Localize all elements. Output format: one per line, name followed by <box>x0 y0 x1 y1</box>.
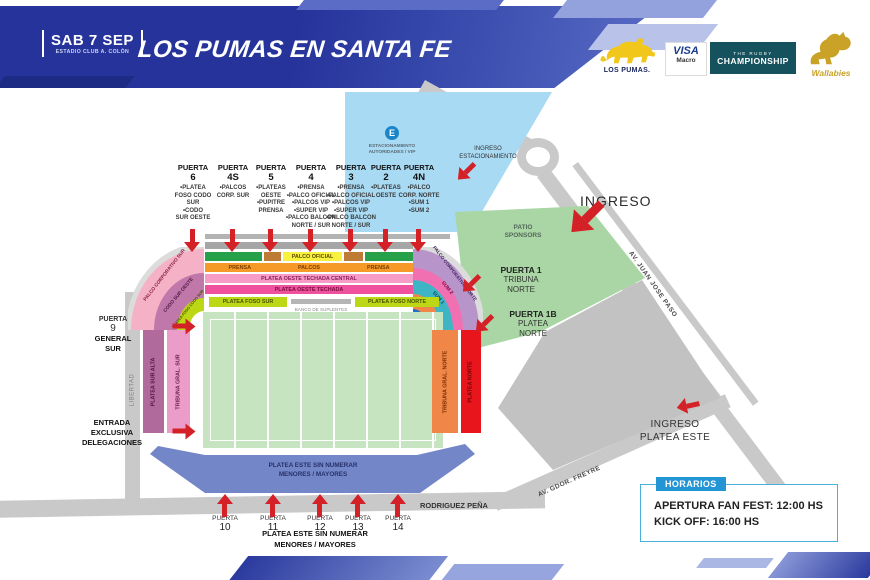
gate-9-number: 9 <box>85 323 141 334</box>
label-palcos: PALCOS <box>298 265 320 271</box>
arrow-gate-2 <box>377 229 393 252</box>
gate-1-subtitle: TRIBUNA NORTE <box>490 275 552 295</box>
section-platea-este: PLATEA ESTE SIN NUMERAR MENORES / MAYORE… <box>148 440 478 495</box>
label-platea-este: PLATEA ESTE SIN NUMERAR MENORES / MAYORE… <box>233 462 393 479</box>
label-prensa-right: PRENSA <box>367 265 389 271</box>
section-platea-oeste-techada-central: PLATEA OESTE TECHADA CENTRAL <box>205 274 413 283</box>
banco-suplentes-bar <box>291 299 351 304</box>
event-date-box: SAB 7 SEP ESTADIO CLUB A. COLÓN <box>42 30 143 57</box>
stadium-access-map: SAB 7 SEP ESTADIO CLUB A. COLÓN LOS PUMA… <box>0 0 870 580</box>
label-platea-sur-alta: PLATEA SUR ALTA <box>151 357 157 406</box>
arrow-gate-14 <box>390 494 406 517</box>
parking-badge: E <box>385 126 399 140</box>
label-platea-norte: PLATEA NORTE <box>468 361 474 402</box>
horarios-box <box>640 484 838 542</box>
gate-title: PUERTA <box>394 163 444 172</box>
section-tribuna-gral-norte: TRIBUNA GRAL. NORTE <box>432 330 458 433</box>
section-box-green-left <box>205 252 262 261</box>
street-label-rodriguez: RODRIGUEZ PEÑA <box>420 501 488 510</box>
macro-label: Macro <box>666 57 706 64</box>
label-foso-norte: PLATEA FOSO NORTE <box>368 299 426 305</box>
event-venue: ESTADIO CLUB A. COLÓN <box>51 49 134 55</box>
arrow-gate-11 <box>265 494 281 517</box>
label-foso-sur: PLATEA FOSO SUR <box>223 299 274 305</box>
footer-shape <box>768 552 870 578</box>
arrow-gate-4n <box>410 229 426 252</box>
section-box-green-right <box>365 252 413 261</box>
rugby-championship-logo: THE RUGBY CHAMPIONSHIP <box>710 42 796 74</box>
entrada-delegaciones-label: ENTRADA EXCLUSIVA DELEGACIONES <box>76 418 148 448</box>
label-tribuna-gral-norte: TRIBUNA GRAL. NORTE <box>442 350 448 413</box>
label-tribuna-gral-sur: TRIBUNA GRAL. SUR <box>176 354 182 409</box>
horarios-tab: HORARIOS <box>656 477 726 491</box>
gate-1b-block: PUERTA 1B PLATEA NORTE <box>502 309 564 339</box>
section-platea-norte: PLATEA NORTE <box>461 330 481 433</box>
label-techada-central: PLATEA OESTE TECHADA CENTRAL <box>261 276 357 282</box>
footer-shape <box>696 558 774 568</box>
section-box-brown-right <box>344 252 363 261</box>
gate-1-title: PUERTA 1 <box>490 265 552 275</box>
arrow-entrada-delegaciones <box>173 424 196 440</box>
gate-9-block: PUERTA 9 GENERAL SUR <box>85 316 141 354</box>
gate-9-title: PUERTA <box>85 316 141 323</box>
event-date: SAB 7 SEP <box>51 32 134 49</box>
arrow-gate-4s <box>224 229 240 252</box>
page-title: LOS PUMAS EN SANTA FE <box>137 36 453 64</box>
gate-items: •PALCO CORP. NORTE •SUM 1 •SUM 2 <box>394 185 444 215</box>
section-prensa-palcos: PRENSA PALCOS PRENSA <box>205 263 413 272</box>
bottom-note: PLATEA ESTE SIN NUMERAR MENORES / MAYORE… <box>245 529 385 550</box>
arrow-gate-12 <box>312 494 328 517</box>
ingreso-estacionamiento-label: INGRESO ESTACIONAMIENTO <box>446 146 530 162</box>
parking-text: ESTACIONAMIENTO AUTORIDADES / VIP <box>352 144 432 156</box>
gate-10-block: PUERTA 10 <box>205 515 245 533</box>
label-palco-oficial: PALCO OFICIAL <box>292 254 334 260</box>
trc-line2: CHAMPIONSHIP <box>710 56 796 66</box>
banner-stripe <box>553 0 717 18</box>
gate-number: 4N <box>394 172 444 183</box>
arrow-gate-3 <box>342 229 358 252</box>
banner-stripe <box>296 0 504 10</box>
section-palco-oficial: PALCO OFICIAL <box>283 252 342 261</box>
section-tribuna-gral-sur: TRIBUNA GRAL. SUR <box>167 330 190 433</box>
ingreso-platea-este-label: INGRESO PLATEA ESTE <box>625 418 725 444</box>
section-platea-foso-sur: PLATEA FOSO SUR <box>209 297 287 307</box>
rugby-field <box>203 312 443 448</box>
horarios-line1: APERTURA FAN FEST: 12:00 HS <box>654 500 823 512</box>
section-platea-oeste-techada: PLATEA OESTE TECHADA <box>205 285 413 294</box>
label-techada: PLATEA OESTE TECHADA <box>275 287 344 293</box>
arrow-gate-9 <box>173 319 196 335</box>
wallabies-logo-icon <box>806 30 856 68</box>
section-box-brown-left <box>264 252 281 261</box>
banner-stripe <box>0 76 135 88</box>
los-pumas-label: LOS PUMAS. <box>594 67 660 74</box>
gate-number: 10 <box>205 522 245 533</box>
arrow-gate-4 <box>302 229 318 252</box>
gate-1b-title: PUERTA 1B <box>502 309 564 319</box>
gate-9-subtitle: GENERAL SUR <box>85 334 141 354</box>
label-prensa-left: PRENSA <box>229 265 251 271</box>
gate-1-block: PUERTA 1 TRIBUNA NORTE <box>490 265 552 295</box>
arrow-gate-5 <box>262 229 278 252</box>
visa-label: VISA <box>666 45 706 57</box>
footer-shape <box>442 564 565 580</box>
footer-shape <box>228 556 448 580</box>
field-boundary <box>210 319 436 441</box>
section-platea-foso-norte: PLATEA FOSO NORTE <box>355 297 439 307</box>
gate-1b-subtitle: PLATEA NORTE <box>502 319 564 339</box>
arrow-gate-6 <box>184 229 200 252</box>
arrow-gate-13 <box>350 494 366 517</box>
horarios-line2: KICK OFF: 16:00 HS <box>654 516 759 528</box>
los-pumas-logo-icon <box>596 34 658 68</box>
gate-column-4n: PUERTA 4N •PALCO CORP. NORTE •SUM 1 •SUM… <box>394 163 444 215</box>
wallabies-label: Wallabies <box>800 68 862 78</box>
visa-macro-logo: VISA Macro <box>665 42 707 76</box>
arrow-gate-10 <box>217 494 233 517</box>
patio-sponsors-label: PATIO SPONSORS <box>493 224 553 241</box>
